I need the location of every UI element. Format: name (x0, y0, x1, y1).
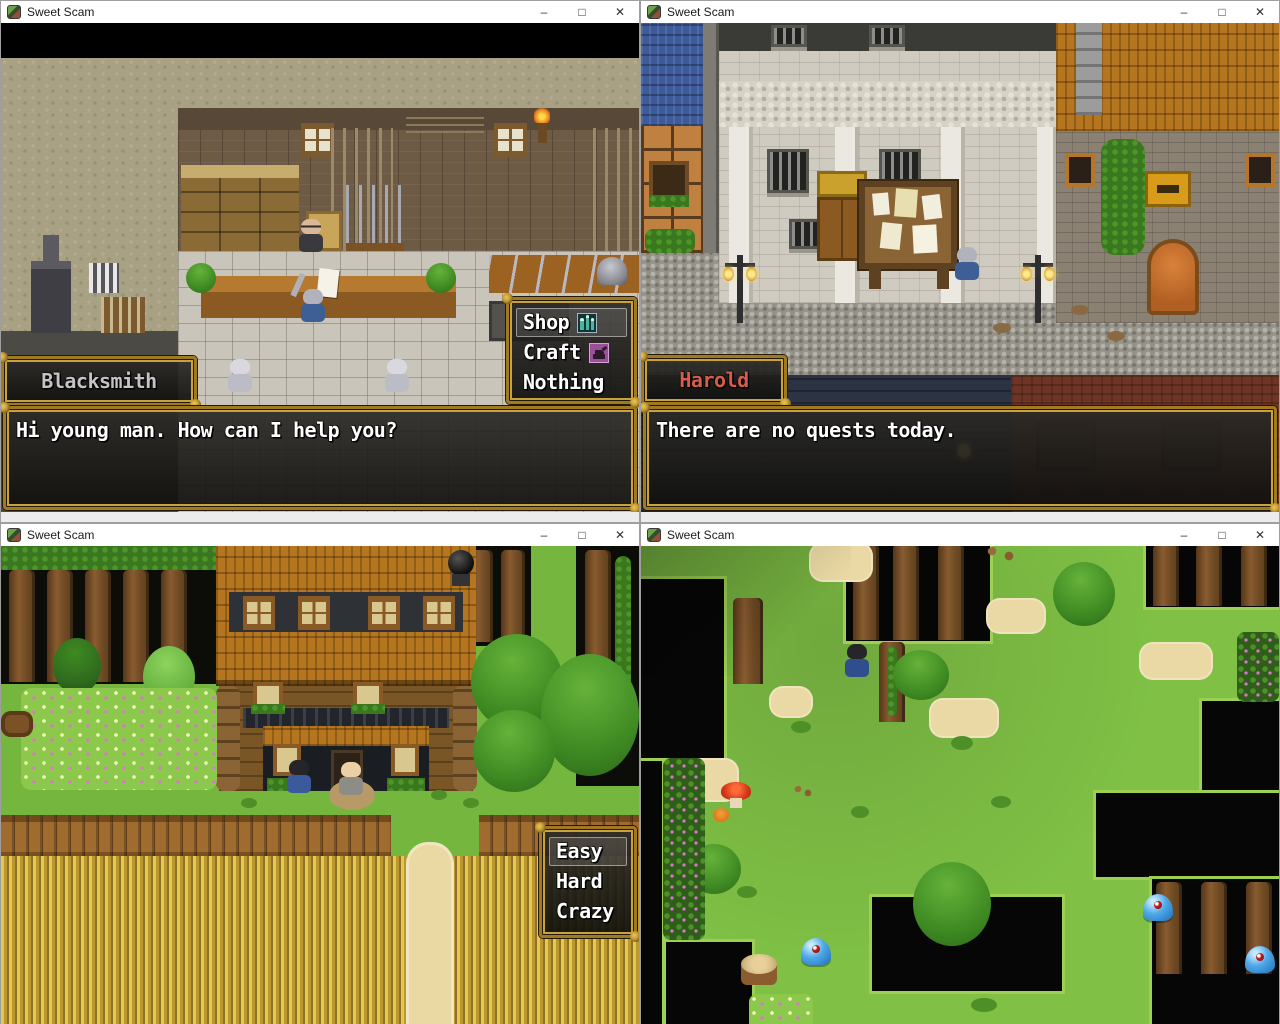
dialogue-box[interactable]: There are no quests today. (643, 406, 1277, 510)
minimize-button[interactable]: – (525, 1, 563, 23)
pebble-frieze (719, 81, 1057, 127)
minimize-button[interactable]: – (1165, 524, 1203, 546)
grass-tuft (951, 736, 973, 750)
dirt-patch (1107, 331, 1125, 341)
craft-anvil-icon (589, 343, 609, 363)
flower-hedge (1237, 632, 1279, 702)
torch-flame (534, 107, 550, 123)
balcony-planter (251, 704, 285, 714)
grass-tuft (645, 229, 695, 253)
npc-harold (953, 247, 981, 280)
pebbles (793, 784, 819, 800)
chimney-pipe (1076, 23, 1102, 115)
tree-trunk (893, 546, 919, 640)
grass-tuft (241, 798, 257, 808)
window (494, 123, 527, 157)
speaker-name-box: Blacksmith (1, 356, 197, 406)
chimney-ball (448, 550, 474, 576)
shuttered-window (1065, 153, 1095, 187)
street-lamp-light (723, 267, 734, 281)
potted-bush (426, 263, 456, 293)
window (301, 123, 334, 157)
big-bush (913, 862, 991, 946)
tree-trunk (938, 546, 964, 640)
player-character (285, 760, 313, 793)
armor-mannequin (383, 359, 411, 392)
slime-enemy (801, 938, 831, 965)
grass-tuft (991, 796, 1011, 808)
difficulty-menu: Easy Hard Crazy (539, 826, 637, 938)
quest-paper (922, 194, 943, 220)
spear-rack (593, 128, 639, 251)
barred-window (767, 149, 809, 193)
wooden-fence (1, 815, 391, 856)
close-button[interactable]: ✕ (1241, 1, 1279, 23)
log (1, 711, 33, 737)
drainpipe (703, 23, 719, 253)
blue-roof (641, 23, 703, 126)
menu-item-craft[interactable]: Craft (516, 338, 627, 367)
dialogue-text: Hi young man. How can I help you? (16, 418, 397, 442)
dialogue-box[interactable]: Hi young man. How can I help you? (3, 406, 637, 510)
sand-patch (769, 686, 813, 718)
pebbles (985, 546, 1029, 566)
grass-tuft (737, 886, 757, 898)
spears-horizontal (406, 115, 484, 133)
menu-item-label: Shop (523, 309, 569, 336)
dirt-path (406, 842, 454, 1024)
board-leg (869, 269, 881, 289)
quest-paper (872, 192, 890, 215)
tree (53, 638, 101, 694)
menu-item-label: Hard (556, 868, 602, 895)
window-title: Sweet Scam (27, 528, 525, 542)
close-button[interactable]: ✕ (601, 524, 639, 546)
dormer-window (298, 596, 330, 630)
red-mushroom-stem (730, 798, 742, 808)
log-pillar (453, 686, 477, 791)
app-icon (7, 5, 21, 19)
game-viewport[interactable]: Easy Hard Crazy (1, 546, 639, 1024)
window-planter (649, 195, 689, 207)
sand-patch (986, 598, 1046, 634)
dormer-window (243, 596, 275, 630)
grass-tuft (463, 798, 479, 808)
barred-window (869, 25, 905, 47)
menu-item-label: Easy (556, 838, 602, 865)
orange-mushroom (713, 808, 729, 822)
armor-mannequin (226, 359, 254, 392)
menu-item-easy[interactable]: Easy (549, 837, 627, 866)
game-viewport[interactable] (641, 546, 1279, 1024)
close-button[interactable]: ✕ (1241, 524, 1279, 546)
bush (1053, 562, 1115, 626)
weapon-stand (346, 185, 404, 251)
quest-paper (894, 188, 918, 217)
shop-potions-icon (577, 313, 597, 333)
barred-window (771, 25, 807, 47)
game-viewport[interactable]: Harold There are no quests today. (641, 23, 1279, 512)
tree-trunk (1196, 546, 1222, 606)
menu-item-label: Craft (523, 339, 581, 366)
maximize-button[interactable]: □ (563, 1, 601, 23)
npc-old-man (337, 762, 365, 795)
menu-item-label: Nothing (523, 369, 604, 396)
close-button[interactable]: ✕ (601, 1, 639, 23)
void (1199, 698, 1279, 793)
void (641, 758, 665, 1024)
vent-grate (89, 263, 119, 293)
porch-hedge (387, 778, 425, 791)
speaker-name: Blacksmith (41, 369, 156, 393)
app-icon (647, 528, 661, 542)
maximize-button[interactable]: □ (563, 524, 601, 546)
window (391, 744, 419, 776)
forest-canopy (1, 546, 216, 570)
shuttered-window (1245, 153, 1275, 187)
furnace (31, 261, 71, 333)
porch-awning (263, 726, 429, 746)
tree-stump-top (741, 954, 777, 974)
grass-tuft (971, 998, 997, 1012)
titlebar[interactable]: Sweet Scam – □ ✕ (1, 1, 639, 23)
quest-paper (912, 224, 937, 253)
app-icon (7, 528, 21, 542)
window-town: Sweet Scam – □ ✕ (640, 0, 1280, 523)
arrow-rack (101, 297, 145, 333)
maximize-button[interactable]: □ (1203, 1, 1241, 23)
helmet (597, 257, 627, 285)
speaker-name: Harold (679, 368, 748, 392)
menu-item-nothing[interactable]: Nothing (516, 368, 627, 397)
dirt-patch (993, 323, 1011, 333)
flower-meadow (21, 688, 217, 790)
dormer-window (423, 596, 455, 630)
speaker-name-box: Harold (641, 355, 787, 405)
desktop: Sweet Scam – □ ✕ (0, 0, 1280, 1024)
cabinet-top (181, 165, 299, 178)
menu-item-shop[interactable]: Shop (516, 308, 627, 337)
street-lamp-light (746, 267, 757, 281)
dirt-patch (1071, 305, 1089, 315)
minimize-button[interactable]: – (1165, 1, 1203, 23)
menu-item-hard[interactable]: Hard (549, 867, 627, 896)
potted-bush (186, 263, 216, 293)
sand-patch (1139, 642, 1213, 680)
titlebar[interactable]: Sweet Scam – □ ✕ (641, 1, 1279, 23)
tree-trunk (501, 550, 525, 642)
street-lamp-light (1021, 267, 1032, 281)
big-tree (541, 654, 639, 776)
tree-trunk (1241, 546, 1267, 606)
window-title: Sweet Scam (667, 528, 1165, 542)
chimney-pot (452, 574, 470, 586)
flower-patch (749, 994, 813, 1024)
balcony-planter (351, 704, 385, 714)
game-viewport[interactable]: Blacksmith Hi young man. How can I help … (1, 23, 639, 512)
flower-hedge (663, 758, 705, 940)
player-character (843, 644, 871, 677)
window-forest: Sweet Scam – □ ✕ (640, 523, 1280, 1024)
window-title: Sweet Scam (667, 5, 1165, 19)
tree-trunk (1201, 882, 1227, 974)
bush (893, 650, 949, 700)
player-character (299, 289, 327, 322)
tree-trunk (1153, 546, 1179, 606)
void (1093, 790, 1279, 880)
wall-vine (1101, 139, 1145, 255)
app-icon (647, 5, 661, 19)
window-blacksmith: Sweet Scam – □ ✕ (0, 0, 640, 523)
grass-tuft (431, 790, 447, 800)
window-title: Sweet Scam (27, 5, 525, 19)
menu-item-crazy[interactable]: Crazy (549, 897, 627, 926)
menu-item-label: Crazy (556, 898, 614, 925)
window-farm: Sweet Scam – □ ✕ (0, 523, 640, 1024)
choice-menu: Shop Craft Nothing (506, 297, 637, 404)
dialogue-text: There are no quests today. (656, 418, 956, 442)
log-pillar (216, 686, 240, 791)
street-lamp-light (1044, 267, 1055, 281)
dormer-window (368, 596, 400, 630)
canopy-shadow (641, 546, 851, 676)
tree-trunk (9, 570, 35, 682)
maximize-button[interactable]: □ (1203, 524, 1241, 546)
sign-slot (1157, 185, 1179, 193)
titlebar[interactable]: Sweet Scam – □ ✕ (1, 524, 639, 546)
board-leg (937, 269, 949, 289)
big-tree (473, 710, 555, 792)
titlebar[interactable]: Sweet Scam – □ ✕ (641, 524, 1279, 546)
npc-blacksmith (297, 219, 325, 252)
round-door (1147, 239, 1199, 315)
grass-tuft (791, 721, 811, 733)
sand-patch (929, 698, 999, 738)
grass-tuft (851, 806, 869, 818)
quest-paper (880, 222, 903, 250)
minimize-button[interactable]: – (525, 524, 563, 546)
